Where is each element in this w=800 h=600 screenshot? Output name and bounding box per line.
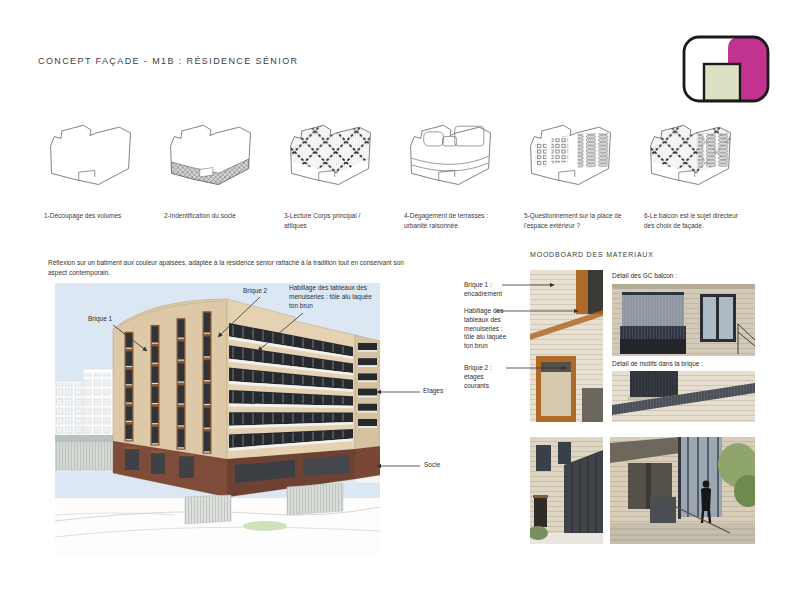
annotation-habillage: Habillage des tableaux des menuiseries :… bbox=[289, 284, 373, 310]
annotation-brique2: Brique 2 bbox=[243, 287, 267, 296]
step-1: 1-Découpage des volumes bbox=[44, 120, 156, 231]
material-photo-street-scene bbox=[610, 437, 755, 544]
step-3: 3-Lecture Corps principal / attiques bbox=[284, 120, 396, 231]
annotation-etages: Etages bbox=[423, 387, 443, 396]
massing-diagram-terrasses bbox=[404, 120, 498, 202]
green-strip bbox=[243, 521, 287, 531]
massing-diagram-volumes bbox=[44, 120, 138, 202]
massing-steps-row: 1-Découpage des volumes 2-Indentificatio… bbox=[44, 120, 756, 231]
massing-diagram-balcon bbox=[644, 120, 738, 202]
agency-logo bbox=[681, 34, 771, 106]
material-photo-motifs-brique bbox=[612, 371, 755, 422]
label-gc-balcon: Détail des GC balcon : bbox=[612, 272, 677, 281]
label-motifs-brique: Détail de motifs dans la brique : bbox=[612, 360, 703, 369]
logo-green-square bbox=[704, 64, 740, 101]
step-5: 5-Questionnement sur la place de l'espac… bbox=[524, 120, 636, 231]
material-photo-brique-encadrement bbox=[530, 270, 603, 422]
step-6: 6-Le balcon est le sujet directeur des c… bbox=[644, 120, 756, 231]
step-caption: 1-Découpage des volumes bbox=[44, 211, 144, 221]
annotation-socle: Socle bbox=[424, 461, 440, 470]
material-photo-courtyard bbox=[530, 437, 603, 544]
concept-paragraph: Réflexion sur un batiment aux couleur ap… bbox=[48, 258, 406, 278]
step-caption: 6-Le balcon est le sujet directeur des c… bbox=[644, 211, 744, 231]
step-caption: 5-Questionnement sur la place de l'espac… bbox=[524, 211, 624, 231]
massing-diagram-corps-principal bbox=[284, 120, 378, 202]
step-2: 2-Indentification du socle bbox=[164, 120, 276, 231]
mb-label-brique1: Brique 1 : encadrement bbox=[464, 281, 508, 299]
massing-diagram-socle bbox=[164, 120, 258, 202]
mb-label-habillage: Habillage des tableaux des menuiseries :… bbox=[464, 307, 512, 351]
page-title: CONCEPT FAÇADE - M1B : RÉSIDENCE SÉNIOR bbox=[38, 56, 298, 66]
annotation-brique1: Brique 1 bbox=[88, 315, 112, 324]
moodboard-title: MOODBOARD DES MATERIAUX bbox=[530, 251, 654, 258]
step-caption: 2-Indentification du socle bbox=[164, 211, 264, 221]
massing-diagram-espace-exterieur bbox=[524, 120, 618, 202]
step-4: 4-Dégagement de terrasses : urbanité rai… bbox=[404, 120, 516, 231]
step-caption: 4-Dégagement de terrasses : urbanité rai… bbox=[404, 211, 504, 231]
mb-label-brique2: Brique 2 : étages courants bbox=[464, 364, 508, 390]
building-render-image bbox=[55, 283, 380, 556]
step-caption: 3-Lecture Corps principal / attiques bbox=[284, 211, 384, 231]
material-photo-gc-balcon bbox=[612, 284, 755, 356]
slide: CONCEPT FAÇADE - M1B : RÉSIDENCE SÉNIOR … bbox=[0, 0, 800, 600]
